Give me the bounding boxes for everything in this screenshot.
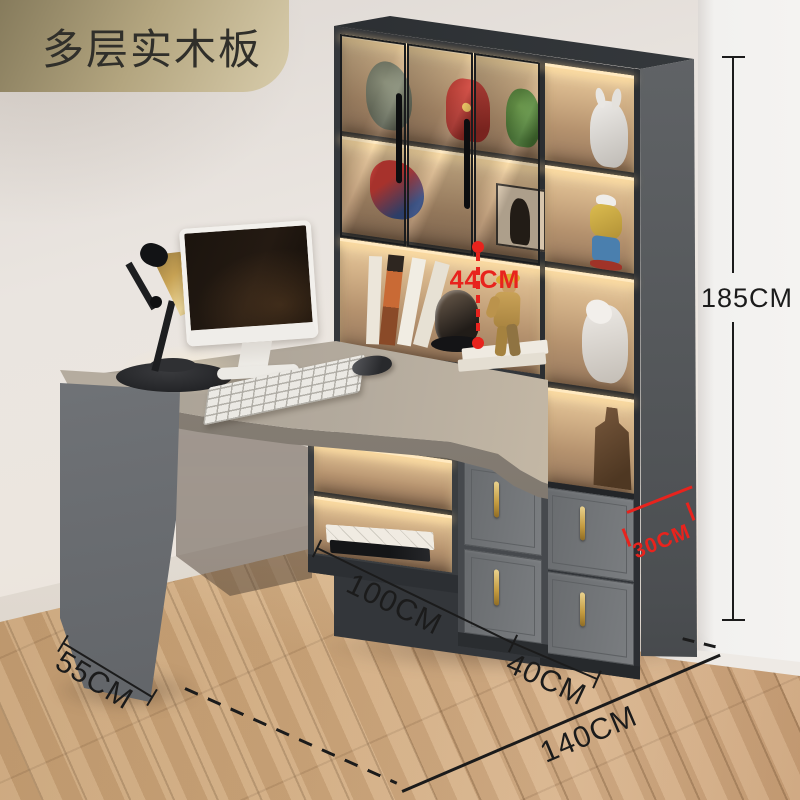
- dim-185cm-label: 185CM: [701, 283, 793, 314]
- drawer-handle-gold: [580, 592, 585, 627]
- cabinet-frame-right: [634, 69, 640, 674]
- dim-44cm-label: 44CM: [448, 266, 522, 295]
- drawer-panel-line: [552, 579, 627, 658]
- dim-44cm-dot-bottom: [472, 337, 484, 349]
- material-badge-label: 多层实木板: [42, 16, 262, 77]
- monitor-screen: [179, 220, 319, 347]
- dim-185cm-line-upper: [732, 57, 734, 273]
- drawer-panel-line: [471, 557, 535, 636]
- dim-185cm-line-lower: [732, 322, 734, 619]
- glass-door-handle-1: [396, 93, 402, 184]
- standing-books: [366, 248, 438, 344]
- glass-door-3: [474, 53, 540, 265]
- right-wall: [698, 0, 800, 700]
- center-drawer-2: [464, 549, 542, 644]
- monitor: [179, 219, 329, 380]
- drawer-handle-gold: [580, 506, 585, 541]
- material-badge: 多层实木板: [0, 0, 289, 92]
- cabinet-drawer-2: [545, 571, 634, 666]
- glass-door-handle-2: [464, 119, 470, 210]
- dim-44cm-dot-top: [472, 241, 484, 253]
- drawer-panel-line: [552, 495, 627, 574]
- drawer-handle-gold: [494, 569, 499, 606]
- cabinet-drawer-1: [545, 487, 634, 582]
- drawer-handle-gold: [494, 481, 499, 518]
- product-photo-scene: 44CM 185CM 30CM 100CM 40CM 140CM 55C: [0, 0, 800, 800]
- desk-lamp-joint: [150, 296, 162, 308]
- figurine-leg: [506, 323, 521, 356]
- dim-185cm-cap-bottom: [722, 619, 745, 621]
